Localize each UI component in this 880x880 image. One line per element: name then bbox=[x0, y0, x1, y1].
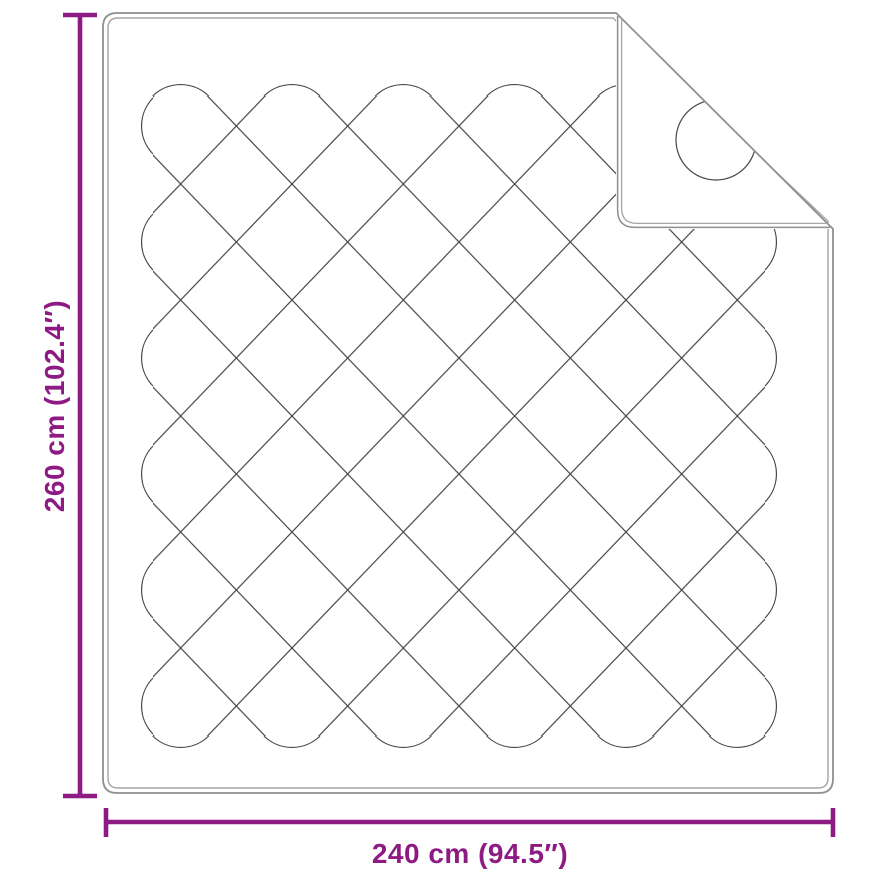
height-dimension-label: 260 cm (102.4″) bbox=[41, 300, 69, 512]
width-dimension-label: 240 cm (94.5″) bbox=[372, 840, 568, 868]
diagram-canvas bbox=[0, 0, 880, 880]
blanket-dimension-diagram: 260 cm (102.4″) 240 cm (94.5″) bbox=[0, 0, 880, 880]
blanket bbox=[103, 13, 833, 793]
width-dimension bbox=[106, 808, 833, 837]
fold-flap bbox=[616, 13, 833, 229]
